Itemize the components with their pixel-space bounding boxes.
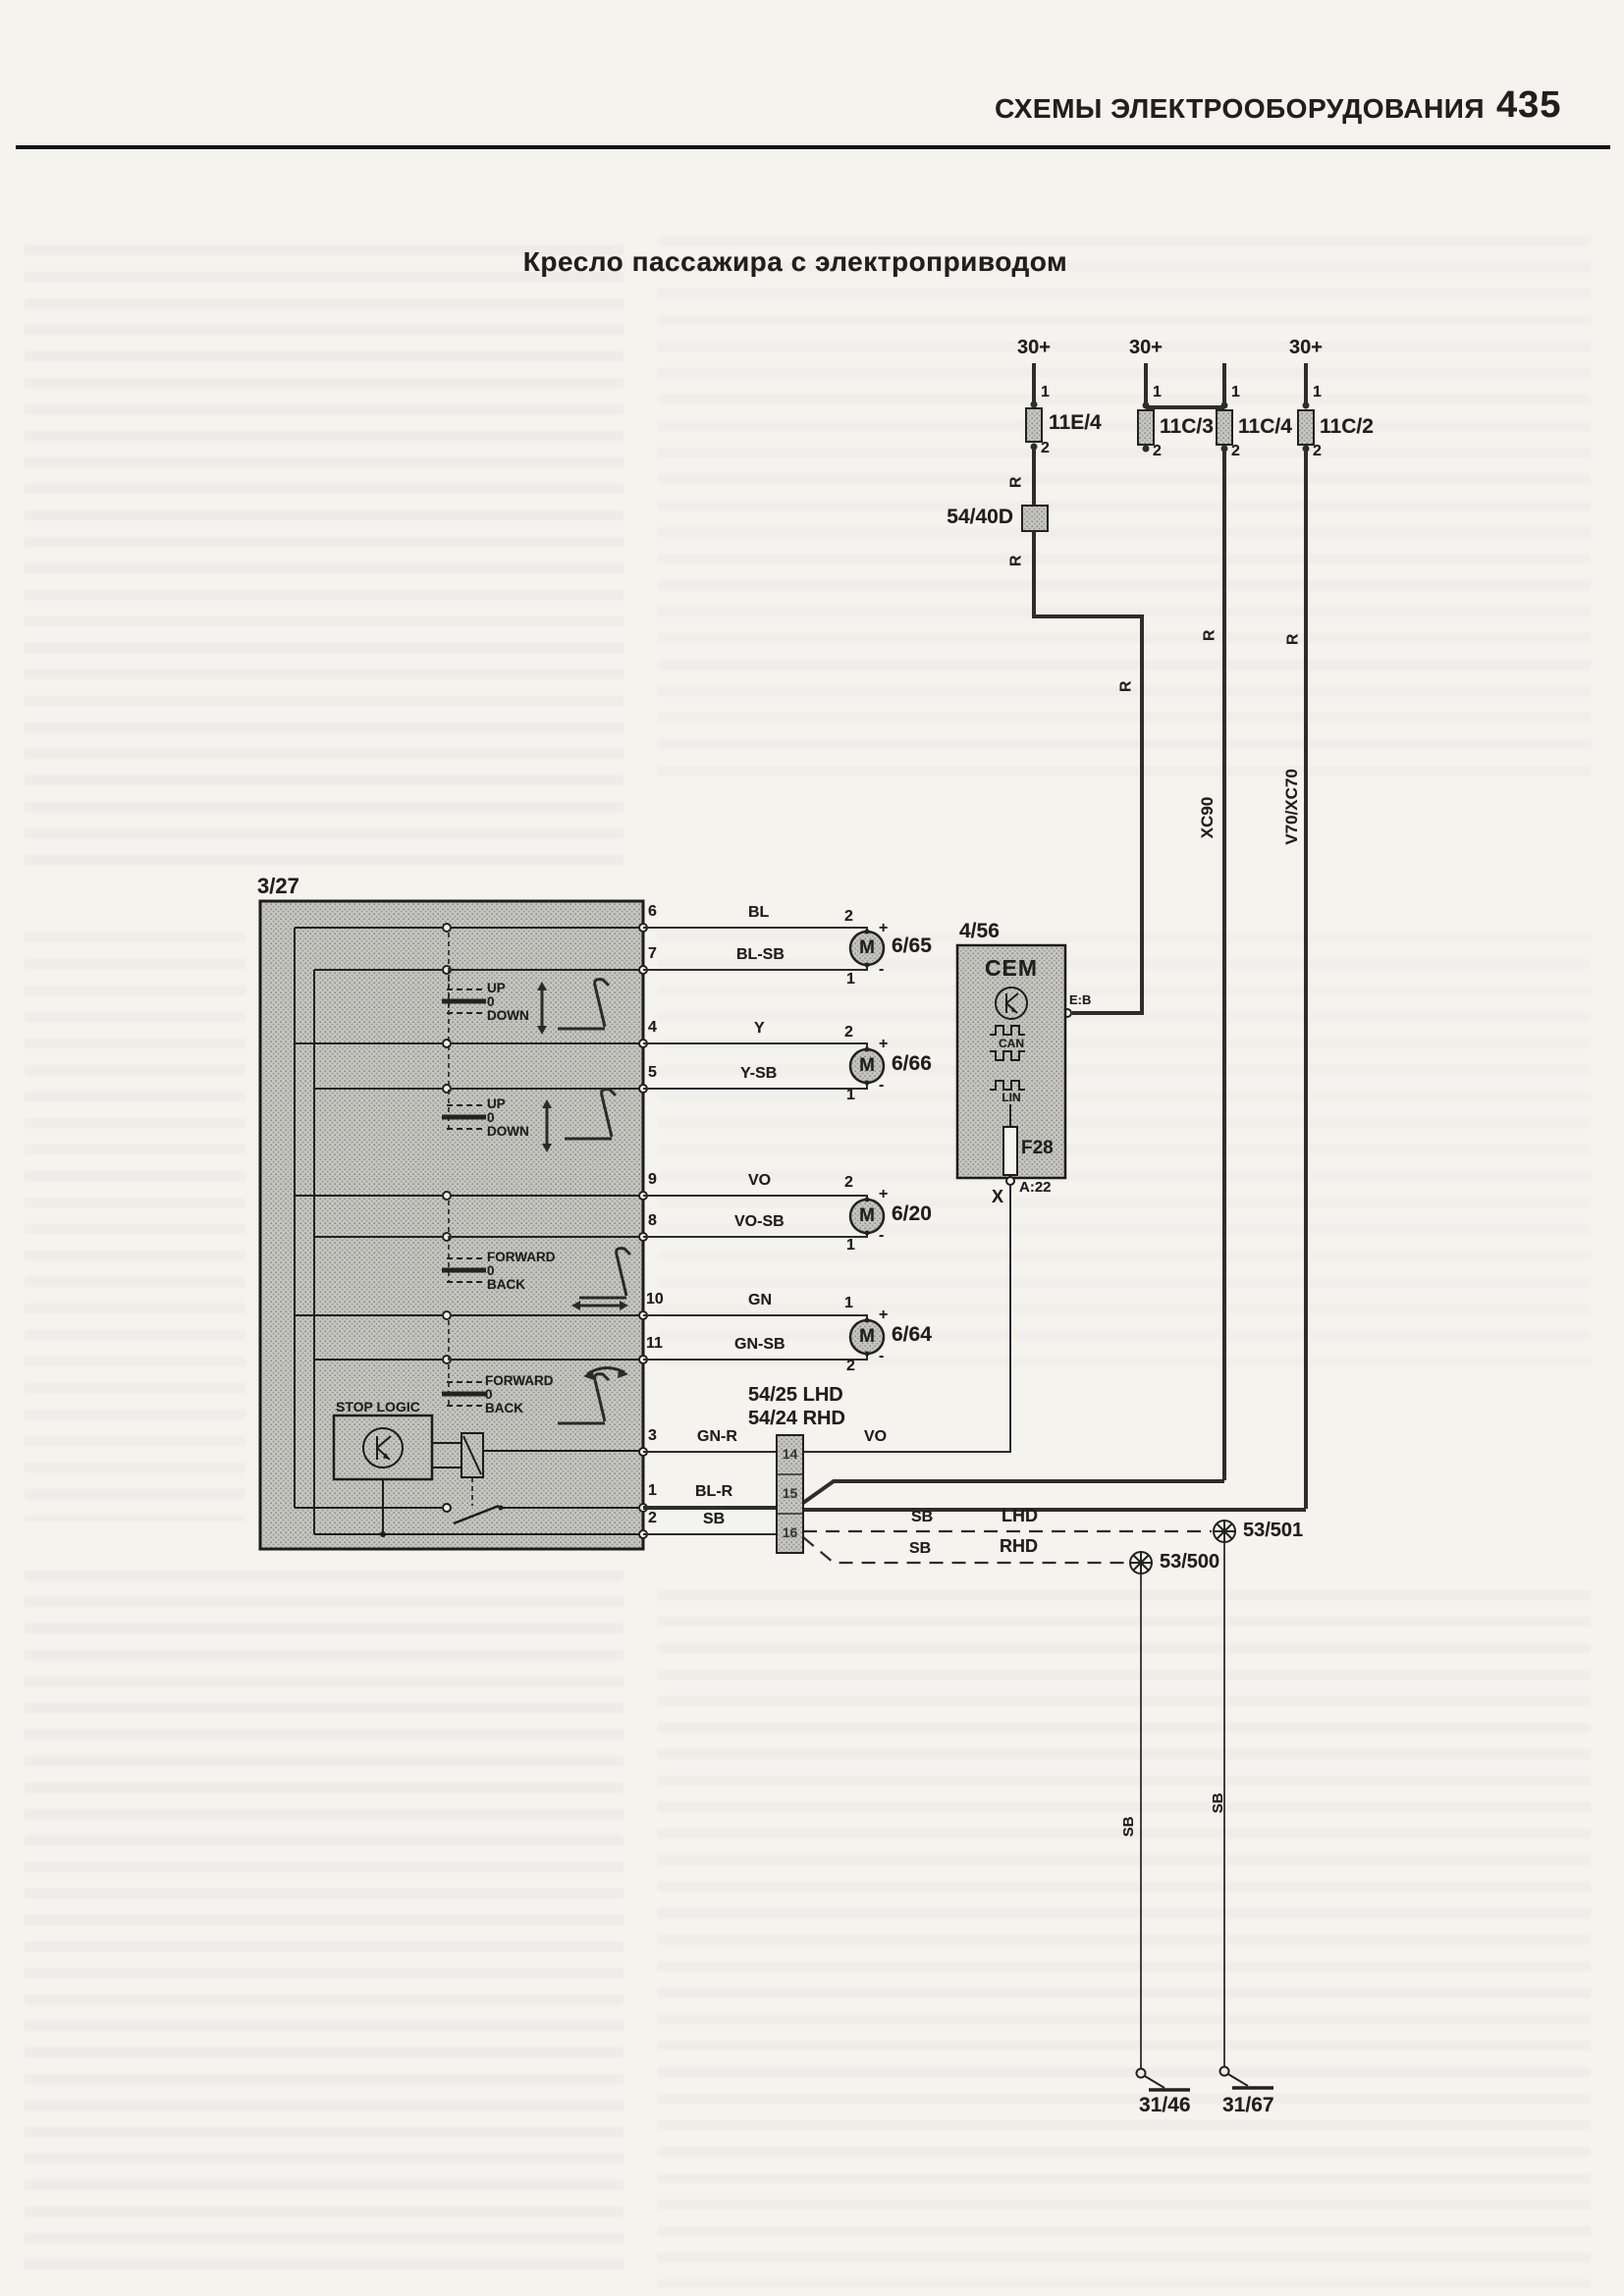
- fuse4-pin-bottom: 2: [1313, 444, 1322, 460]
- motor2-minus: -: [879, 1078, 884, 1095]
- model-v70xc70-label: V70/XC70: [1283, 760, 1301, 854]
- motor-symbols: [850, 930, 884, 1357]
- wire-r-label-5: R: [1286, 629, 1303, 649]
- cem-x-mark: X: [992, 1188, 1003, 1206]
- group2-down: DOWN: [487, 1125, 529, 1139]
- motor4-pin-bottom: 2: [846, 1359, 855, 1375]
- wire-vo-out-label: VO: [864, 1429, 887, 1446]
- group1-down: DOWN: [487, 1009, 529, 1023]
- motor1-m: M: [857, 938, 877, 958]
- fuse3-pin-top: 1: [1231, 385, 1240, 401]
- fuse2-pin-bottom: 2: [1153, 444, 1162, 460]
- motor1-minus: -: [879, 962, 884, 979]
- module-pin-6: 6: [648, 904, 657, 921]
- feed-wire-11c4-xc90: [1217, 363, 1232, 1480]
- scanned-manual-page: СХЕМЫ ЭЛЕКТРООБОРУДОВАНИЯ 435 Кресло пас…: [0, 0, 1624, 2296]
- wire-bl-label: BL: [748, 905, 769, 922]
- stop-logic-label: STOP LOGIC: [336, 1400, 420, 1415]
- wire-gn-label: GN: [748, 1293, 772, 1309]
- module-pin-5: 5: [648, 1065, 657, 1082]
- group4-up: FORWARD: [485, 1374, 554, 1388]
- module-pin-3: 3: [648, 1428, 657, 1445]
- wire-r-label-3: R: [1119, 676, 1136, 696]
- fuse1-pin-bottom: 2: [1041, 441, 1050, 457]
- wire-vo-label: VO: [748, 1173, 771, 1190]
- lamp-53-500-label: 53/500: [1160, 1552, 1219, 1573]
- page-header: СХЕМЫ ЭЛЕКТРООБОРУДОВАНИЯ: [687, 94, 1485, 123]
- motor3-minus: -: [879, 1228, 884, 1245]
- motor3-plus: +: [879, 1187, 888, 1203]
- power-30-label-2: 30+: [1116, 338, 1175, 358]
- motor3-id: 6/20: [892, 1203, 932, 1225]
- motor4-m: M: [857, 1327, 877, 1347]
- wire-gnsb-label: GN-SB: [734, 1337, 785, 1354]
- module-pin-7: 7: [648, 946, 657, 963]
- cem-pin-eb-label: E:B: [1069, 993, 1091, 1007]
- wire-sb-label: SB: [703, 1512, 725, 1528]
- wire-gnr-label: GN-R: [697, 1429, 737, 1446]
- harness-lhd-id: 54/25 LHD: [748, 1385, 843, 1406]
- module-pin-8: 8: [648, 1213, 657, 1230]
- fuse-11e4-label: 11E/4: [1049, 412, 1102, 434]
- motor2-pin-top: 2: [844, 1025, 853, 1041]
- group3-down: BACK: [487, 1278, 525, 1292]
- header-rule: [16, 145, 1610, 149]
- motor1-id: 6/65: [892, 935, 932, 957]
- diagram-title: Кресло пассажира с электроприводом: [393, 247, 1198, 276]
- fuse2-pin-top: 1: [1153, 385, 1162, 401]
- module-pin-4: 4: [648, 1020, 657, 1037]
- wire-sb-rhd-label: SB: [909, 1541, 931, 1558]
- motor2-plus: +: [879, 1037, 888, 1053]
- fuse1-pin-top: 1: [1041, 385, 1050, 401]
- harness-cell-14: 14: [777, 1447, 803, 1462]
- fuse-11c3-label: 11C/3: [1160, 416, 1214, 438]
- wire-sb-drop-right: SB: [1211, 1790, 1226, 1816]
- motor4-plus: +: [879, 1308, 888, 1324]
- motor4-minus: -: [879, 1349, 884, 1365]
- motor4-pin-top: 1: [844, 1296, 853, 1312]
- motor3-m: M: [857, 1206, 877, 1226]
- harness-wires: [643, 1185, 1306, 1563]
- module-pin-11: 11: [646, 1336, 663, 1353]
- cem-id-label: 4/56: [959, 921, 1000, 942]
- lamp-53-500: [1130, 1552, 1152, 1574]
- ground-31-67-label: 31/67: [1222, 2095, 1274, 2116]
- fuse4-pin-top: 1: [1313, 385, 1322, 401]
- fuse3-pin-bottom: 2: [1231, 444, 1240, 460]
- connector-5440d-label: 54/40D: [913, 507, 1013, 528]
- cem-fuse-f28-label: F28: [1021, 1139, 1054, 1158]
- power-30-label-1: 30+: [1004, 338, 1063, 358]
- power-30-label-3: 30+: [1276, 338, 1335, 358]
- lamp-53-501: [1214, 1521, 1235, 1542]
- module-pin-10: 10: [646, 1292, 664, 1308]
- wire-r-label-4: R: [1203, 625, 1219, 645]
- wire-vosb-label: VO-SB: [734, 1214, 785, 1231]
- wire-sb-drop-left: SB: [1121, 1814, 1137, 1840]
- motor1-plus: +: [879, 921, 888, 937]
- group3-up: FORWARD: [487, 1251, 556, 1264]
- cem-pin-a22-label: A:22: [1019, 1180, 1052, 1196]
- module-pin-1: 1: [648, 1483, 657, 1500]
- motor2-pin-bottom: 1: [846, 1088, 855, 1104]
- model-xc90-label: XC90: [1199, 790, 1217, 845]
- motor1-pin-bottom: 1: [846, 972, 855, 988]
- switch-module-label: 3/27: [257, 875, 299, 897]
- motor3-pin-top: 2: [844, 1175, 853, 1192]
- harness-cell-16: 16: [777, 1525, 803, 1540]
- fuse-11c4-label: 11C/4: [1238, 416, 1292, 438]
- module-pin-9: 9: [648, 1172, 657, 1189]
- motor3-pin-bottom: 1: [846, 1238, 855, 1255]
- motor1-pin-top: 2: [844, 909, 853, 926]
- route-rhd-label: RHD: [1000, 1537, 1038, 1556]
- motor2-id: 6/66: [892, 1053, 932, 1075]
- cem-name-label: CEM: [984, 956, 1039, 980]
- wire-r-label-1: R: [1009, 472, 1026, 492]
- wire-blsb-label: BL-SB: [736, 947, 785, 964]
- cem-can-label: CAN: [990, 1038, 1033, 1050]
- switch-module-box: [260, 901, 647, 1549]
- page-number: 435: [1496, 86, 1561, 126]
- harness-cell-15: 15: [777, 1486, 803, 1501]
- feed-wire-11c2-v70: [1298, 363, 1314, 1509]
- cem-lin-label: LIN: [990, 1092, 1033, 1104]
- wire-blr-label: BL-R: [695, 1484, 732, 1501]
- wire-sb-lhd-label: SB: [911, 1510, 933, 1526]
- module-pin-2: 2: [648, 1511, 657, 1527]
- group4-down: BACK: [485, 1402, 523, 1415]
- ground-31-67: [1220, 2067, 1274, 2089]
- ground-31-46: [1137, 2069, 1191, 2091]
- lamp-53-501-label: 53/501: [1243, 1521, 1303, 1541]
- harness-rhd-id: 54/24 RHD: [748, 1409, 845, 1429]
- motor2-m: M: [857, 1056, 877, 1076]
- motor4-id: 6/64: [892, 1324, 932, 1346]
- route-lhd-label: LHD: [1001, 1507, 1038, 1525]
- feed-wire-11c3: [1138, 363, 1224, 453]
- wiring-diagram-canvas: [0, 0, 1624, 2296]
- ground-31-46-label: 31/46: [1139, 2095, 1191, 2116]
- fuse-11c2-label: 11C/2: [1320, 416, 1374, 438]
- wire-ysb-label: Y-SB: [740, 1066, 777, 1083]
- wire-y-label: Y: [754, 1021, 765, 1038]
- wire-r-label-2: R: [1009, 551, 1026, 570]
